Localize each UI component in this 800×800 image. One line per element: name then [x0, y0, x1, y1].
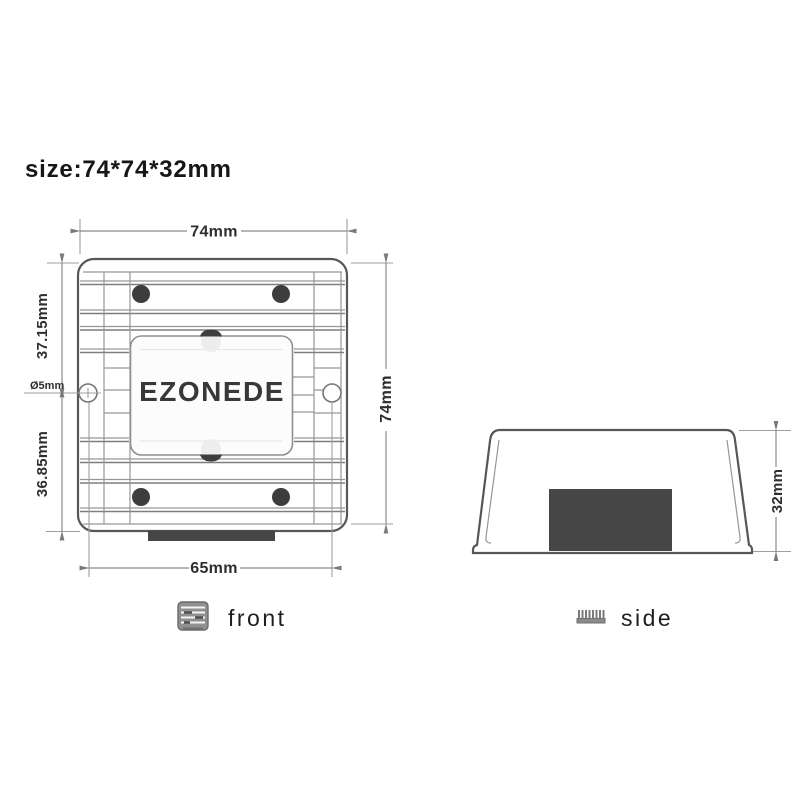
product-dimension-diagram: size:74*74*32mm	[0, 0, 800, 800]
dim-label-width: 74mm	[190, 224, 237, 241]
dim-label-hole-spacing: 65mm	[190, 560, 237, 577]
side-view-icon	[577, 610, 605, 623]
dim-label-lower-offset: 36.85mm	[34, 431, 51, 497]
label-plate: EZONEDE	[131, 330, 293, 462]
side-label-text: side	[621, 605, 673, 631]
front-label-text: front	[228, 605, 287, 631]
screw-bottom-right	[272, 488, 290, 506]
screw-bottom-left	[132, 488, 150, 506]
diagram-svg: size:74*74*32mm	[0, 0, 800, 800]
brand-label: EZONEDE	[139, 376, 285, 407]
front-view-icon	[178, 602, 208, 630]
screw-top-right	[272, 285, 290, 303]
dim-label-upper-offset: 37.15mm	[34, 293, 51, 359]
side-view-label: side	[577, 605, 673, 631]
dim-label-height: 74mm	[378, 375, 395, 422]
mounting-hole-right	[323, 384, 341, 402]
front-view-label: front	[178, 602, 287, 631]
side-connector-block	[549, 489, 672, 551]
screw-top-left	[132, 285, 150, 303]
dim-label-hole-diameter: Ø5mm	[30, 380, 64, 392]
front-view-diagram: EZONEDE 74mm 74mm	[24, 219, 395, 577]
dim-label-depth: 32mm	[769, 469, 786, 514]
side-view-diagram: 32mm	[473, 430, 791, 553]
dimensions-side: 32mm	[769, 431, 786, 552]
size-label: size:74*74*32mm	[25, 156, 232, 183]
connector-bar	[148, 531, 275, 542]
